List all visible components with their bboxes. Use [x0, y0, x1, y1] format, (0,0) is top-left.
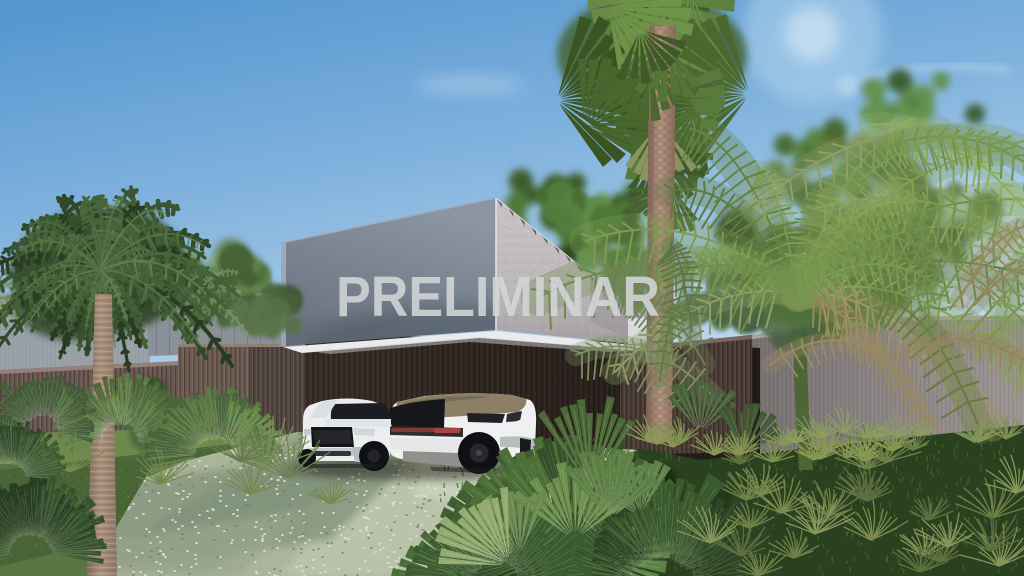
svg-text:PRELIMINAR: PRELIMINAR	[336, 265, 660, 329]
